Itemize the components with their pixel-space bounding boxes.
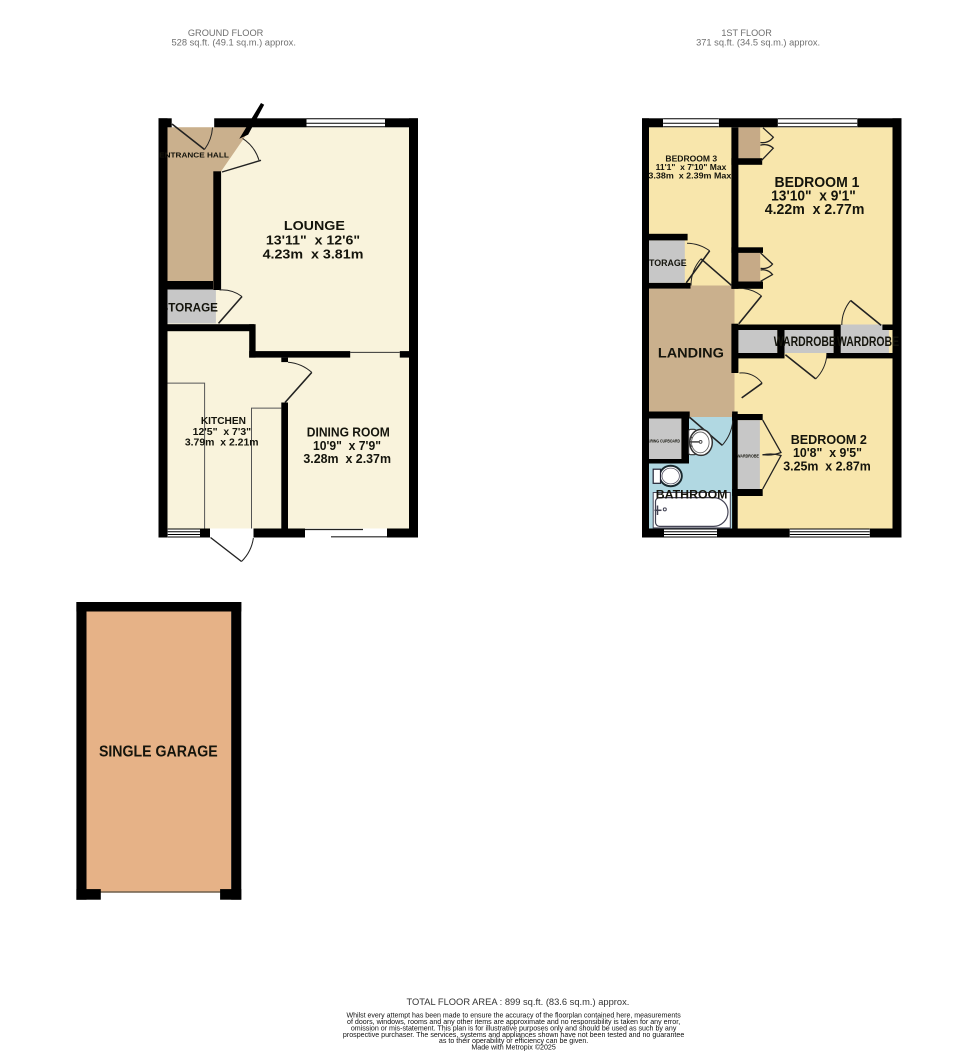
svg-text:AIRING CUPBOARD: AIRING CUPBOARD [647,439,681,444]
svg-text:4.22m x 2.77m: 4.22m x 2.77m [765,202,865,218]
svg-text:12'5" x 7'3": 12'5" x 7'3" [193,427,252,438]
svg-text:ENTRANCE HALL: ENTRANCE HALL [159,151,229,160]
svg-text:13'11" x 12'6": 13'11" x 12'6" [266,232,360,247]
svg-text:4.23m x 3.81m: 4.23m x 3.81m [263,246,364,261]
svg-text:BATHROOM: BATHROOM [656,487,728,501]
svg-text:LOUNGE: LOUNGE [284,218,345,233]
svg-text:3.38m x 2.39m Max: 3.38m x 2.39m Max [648,170,731,180]
svg-text:371 sq.ft. (34.5 sq.m.) approx: 371 sq.ft. (34.5 sq.m.) approx. [696,38,820,49]
svg-text:BEDROOM 2: BEDROOM 2 [791,433,867,447]
svg-text:10'9" x 7'9": 10'9" x 7'9" [313,439,381,453]
svg-text:TOTAL FLOOR AREA : 899 sq.ft.: TOTAL FLOOR AREA : 899 sq.ft. (83.6 sq.m… [406,997,629,1008]
svg-text:Made with Metropix ©2025: Made with Metropix ©2025 [471,1044,556,1052]
svg-text:LANDING: LANDING [658,346,724,361]
svg-text:SINGLE GARAGE: SINGLE GARAGE [99,744,218,761]
svg-text:3.79m x 2.21m: 3.79m x 2.21m [185,438,259,449]
svg-text:KITCHEN: KITCHEN [201,416,246,427]
svg-text:WARDROBE: WARDROBE [774,334,836,349]
svg-text:WARDROBE: WARDROBE [737,453,759,458]
svg-text:STORAGE: STORAGE [161,302,219,315]
svg-text:WARDROBE: WARDROBE [837,334,899,349]
svg-text:3.25m x 2.87m: 3.25m x 2.87m [783,460,871,474]
svg-text:10'8" x 9'5": 10'8" x 9'5" [793,446,862,460]
svg-text:528 sq.ft. (49.1 sq.m.) approx: 528 sq.ft. (49.1 sq.m.) approx. [171,38,296,49]
svg-text:STORAGE: STORAGE [643,258,687,268]
svg-text:3.28m x 2.37m: 3.28m x 2.37m [303,452,391,466]
svg-text:DINING ROOM: DINING ROOM [307,425,390,439]
